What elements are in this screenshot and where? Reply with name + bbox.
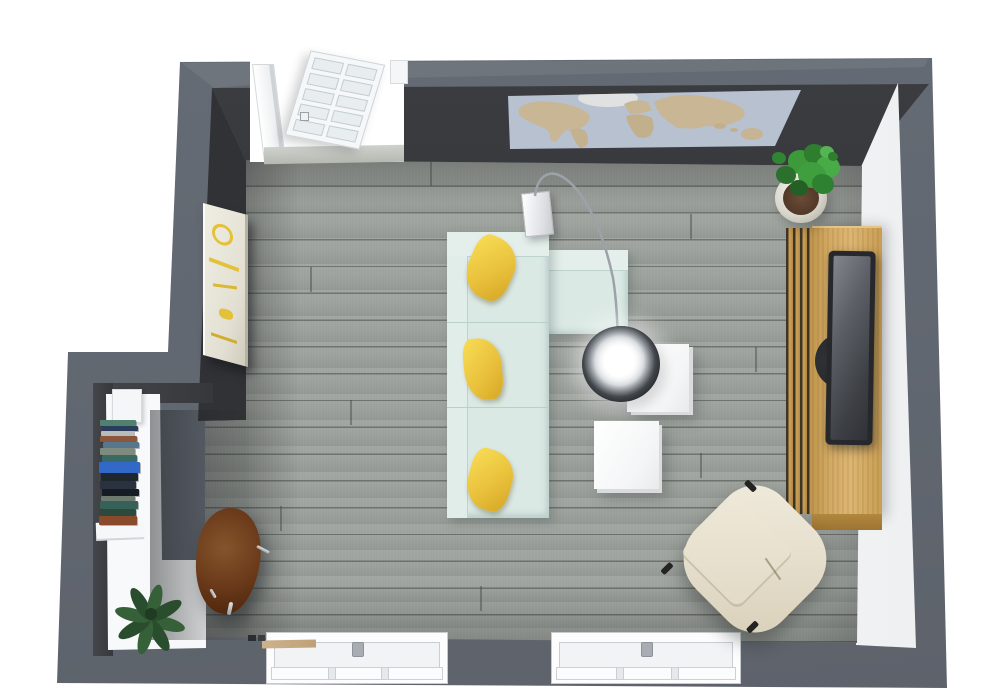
door-handle — [300, 112, 309, 121]
console-slats — [786, 228, 814, 514]
sill-object — [248, 635, 256, 641]
book-spine — [100, 481, 136, 489]
window-right[interactable] — [551, 632, 741, 684]
door-glass-pane — [345, 64, 378, 81]
door-glass-pane — [307, 73, 340, 90]
art-yellow-ring — [212, 221, 233, 248]
book-spine — [100, 448, 135, 455]
door-glass-pane — [311, 57, 344, 74]
window-mullion — [381, 668, 389, 679]
plant-center — [145, 608, 157, 620]
plank-joint — [350, 400, 352, 425]
door-glass-pane — [326, 125, 359, 142]
foliage — [828, 152, 838, 161]
art-yellow-stroke — [213, 283, 237, 289]
door-jamb-right — [390, 60, 408, 84]
sofa-cushion-seam — [447, 407, 549, 408]
art-yellow-blob — [219, 307, 233, 321]
window-pane-row — [271, 667, 443, 680]
window-mullion — [328, 668, 336, 679]
foliage — [772, 152, 786, 164]
plank-joint — [690, 214, 692, 239]
door-glass-pane — [340, 79, 373, 96]
plank-joint — [430, 161, 432, 186]
foliage — [812, 174, 834, 194]
world-map-graphic — [508, 90, 802, 150]
floor-plan-scene — [0, 0, 1000, 694]
plank-joint — [700, 453, 702, 478]
plank-joint — [755, 347, 757, 372]
door-glass-pane — [330, 110, 363, 127]
door-glass-pane — [302, 88, 335, 105]
book-spine — [99, 516, 137, 525]
foliage — [790, 180, 808, 196]
console-end-face — [812, 514, 882, 530]
door-threshold — [264, 145, 404, 164]
book-spine — [101, 473, 138, 481]
window-sill-wood-strip — [262, 640, 316, 649]
potted-plant-large[interactable] — [766, 140, 846, 230]
door-glass-pane — [292, 119, 325, 136]
window-mullion — [671, 668, 679, 679]
window-handle — [352, 642, 364, 657]
plank-joint — [310, 267, 312, 292]
abstract-canvas-art[interactable] — [203, 203, 248, 367]
book-spine — [102, 509, 136, 516]
art-yellow-stroke — [209, 257, 239, 272]
desk-end-panel — [112, 389, 142, 423]
lamp-shade — [582, 326, 660, 402]
art-yellow-stroke — [211, 332, 237, 344]
islands-se-asia — [730, 128, 738, 132]
continent-australia — [741, 128, 763, 140]
tv-screen — [830, 256, 870, 441]
plank-joint — [480, 586, 482, 611]
islands-se-asia — [714, 123, 726, 129]
window-handle — [641, 642, 653, 657]
book-spine — [99, 462, 140, 473]
door-glass-pane — [335, 95, 368, 112]
world-map-art[interactable] — [508, 90, 802, 150]
book-spine — [100, 501, 138, 509]
window-mullion — [616, 668, 624, 679]
sill-object — [258, 635, 265, 641]
book-spine — [102, 489, 139, 496]
book-spine — [102, 455, 137, 462]
plank-joint — [280, 506, 282, 531]
flatscreen-tv[interactable] — [825, 251, 875, 446]
cube-side-table[interactable] — [594, 421, 659, 489]
potted-plant-small[interactable] — [112, 582, 188, 656]
sofa-back-band — [447, 256, 468, 518]
window-pane-row — [556, 667, 736, 680]
